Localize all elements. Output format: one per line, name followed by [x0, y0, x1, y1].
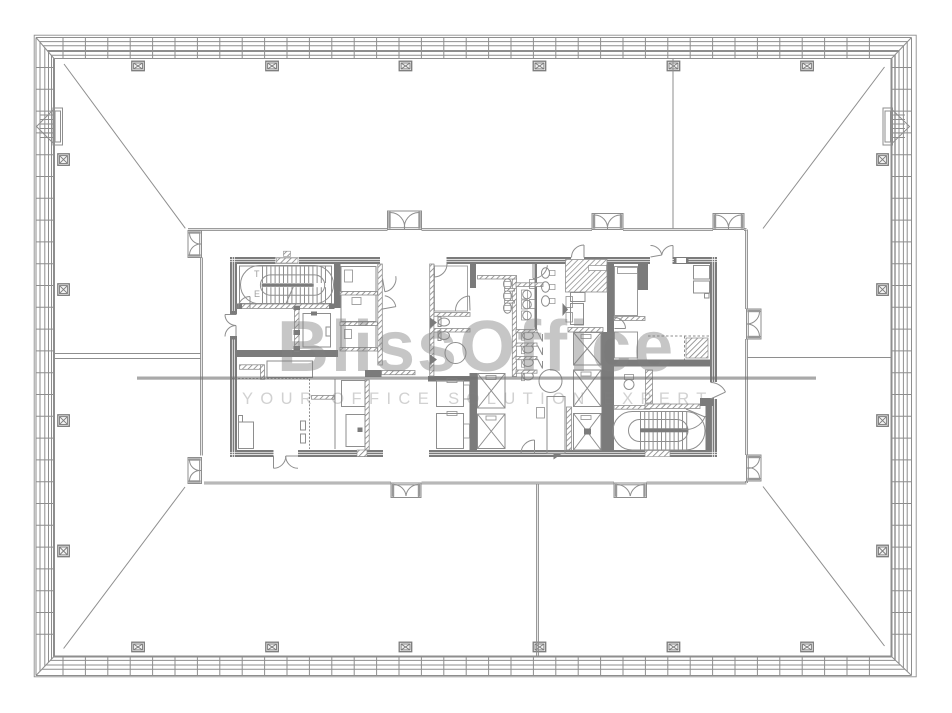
svg-text:BlissOffice: BlissOffice: [277, 307, 675, 387]
svg-text:T: T: [254, 269, 260, 279]
svg-text:YOUR OFFICE SOLUTION EXPERT: YOUR OFFICE SOLUTION EXPERT: [242, 390, 714, 408]
svg-text:E: E: [254, 289, 260, 299]
